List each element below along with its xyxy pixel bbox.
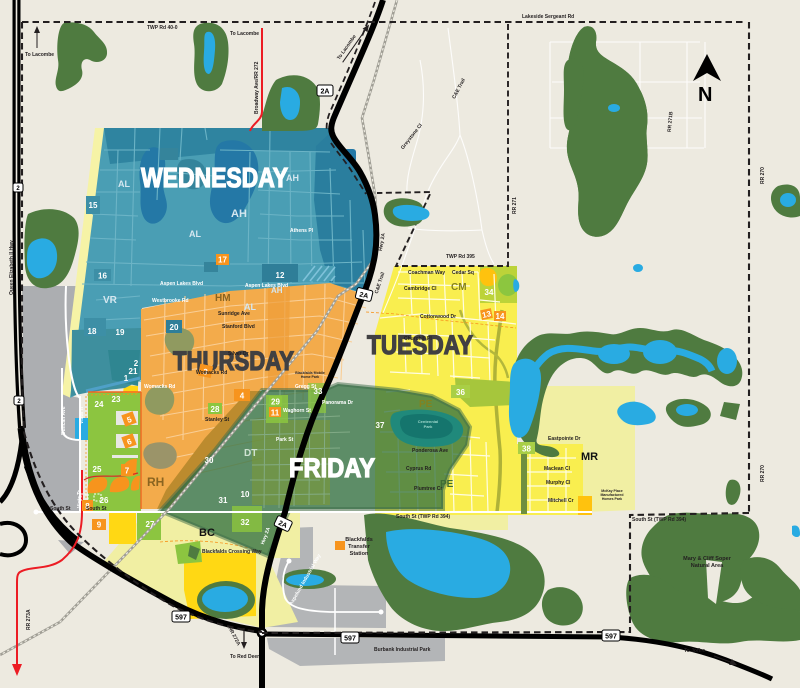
svg-text:18: 18 [88, 327, 97, 336]
svg-text:24: 24 [95, 400, 104, 409]
svg-text:Burbank Industrial Park: Burbank Industrial Park [374, 647, 431, 653]
svg-text:Mary & Cliff Soper: Mary & Cliff Soper [683, 556, 732, 562]
svg-text:Duncan Ave: Duncan Ave [61, 406, 67, 435]
svg-text:Athens Pl: Athens Pl [290, 228, 314, 234]
svg-text:South St (TWP Rd 394): South St (TWP Rd 394) [632, 517, 686, 523]
svg-text:Blackfalds: Blackfalds [345, 537, 373, 543]
svg-text:DT: DT [244, 448, 257, 459]
svg-text:BC: BC [199, 527, 215, 539]
svg-text:Blackfalds Crossing Way: Blackfalds Crossing Way [202, 549, 262, 555]
svg-text:Churchill Pl: Churchill Pl [404, 336, 432, 342]
svg-text:19: 19 [116, 328, 125, 337]
svg-text:Plumtree Cr: Plumtree Cr [414, 486, 442, 492]
svg-text:1: 1 [124, 374, 129, 383]
svg-text:RH: RH [147, 475, 164, 489]
svg-text:South St: South St [50, 506, 71, 512]
svg-text:Ponderosa Ave: Ponderosa Ave [412, 448, 448, 454]
svg-text:10: 10 [241, 490, 250, 499]
svg-text:MR: MR [581, 451, 598, 463]
svg-text:TUESDAY: TUESDAY [367, 330, 473, 360]
svg-text:597: 597 [175, 615, 187, 622]
svg-text:Coachman Way: Coachman Way [408, 270, 445, 276]
svg-text:Transfer: Transfer [348, 544, 371, 550]
svg-text:AL: AL [118, 179, 130, 189]
svg-text:Park St: Park St [276, 437, 294, 443]
svg-text:Natural Area: Natural Area [691, 563, 724, 569]
svg-text:38: 38 [522, 445, 531, 454]
svg-text:Stanford Blvd: Stanford Blvd [222, 324, 255, 330]
svg-text:To Red Deer: To Red Deer [230, 654, 259, 660]
svg-text:South St: South St [86, 506, 107, 512]
svg-text:To Lacombe: To Lacombe [230, 31, 259, 37]
svg-text:PE: PE [419, 399, 433, 410]
svg-text:AH: AH [231, 208, 247, 220]
svg-text:29: 29 [271, 398, 280, 407]
svg-text:15: 15 [89, 201, 98, 210]
svg-text:HM: HM [215, 293, 231, 304]
svg-text:Womacks Rd: Womacks Rd [144, 384, 175, 390]
svg-text:Home Park: Home Park [301, 375, 319, 379]
svg-text:Gregg St: Gregg St [295, 384, 316, 390]
svg-text:Vista Tr: Vista Tr [77, 490, 83, 508]
svg-text:Eastpointe Dr: Eastpointe Dr [548, 436, 581, 442]
svg-text:TWP Rd 395: TWP Rd 395 [446, 254, 475, 260]
svg-text:CM: CM [451, 282, 467, 293]
svg-text:To Lacombe: To Lacombe [25, 52, 54, 58]
svg-text:N: N [698, 84, 712, 106]
svg-text:30: 30 [205, 456, 214, 465]
svg-text:11: 11 [271, 409, 280, 418]
svg-text:Cambridge Cl: Cambridge Cl [404, 286, 437, 292]
svg-text:Station: Station [350, 551, 369, 557]
svg-text:Cedar Sq: Cedar Sq [452, 270, 474, 276]
svg-text:20: 20 [170, 323, 179, 332]
svg-text:25: 25 [93, 465, 102, 474]
svg-text:21: 21 [129, 367, 138, 376]
svg-text:AL: AL [189, 229, 201, 239]
svg-text:17: 17 [218, 256, 227, 265]
svg-text:AH: AH [286, 173, 299, 183]
svg-text:31: 31 [219, 496, 228, 505]
svg-text:28: 28 [211, 405, 220, 414]
svg-text:South St (TWP Rd 394): South St (TWP Rd 394) [396, 514, 450, 520]
svg-text:Aspen Lakes Blvd: Aspen Lakes Blvd [245, 283, 288, 289]
svg-text:14: 14 [496, 312, 505, 321]
svg-text:RR 270: RR 270 [760, 167, 766, 184]
svg-text:Womacks Rd: Womacks Rd [196, 370, 227, 376]
svg-text:Homes Park: Homes Park [602, 497, 622, 501]
svg-text:Cyprus Rd: Cyprus Rd [406, 466, 431, 472]
svg-text:Vista Tr: Vista Tr [79, 406, 85, 424]
svg-text:Waghorn St: Waghorn St [283, 408, 311, 414]
svg-text:27: 27 [146, 520, 155, 529]
svg-text:16: 16 [98, 272, 107, 281]
svg-text:Mitchell Cr: Mitchell Cr [548, 498, 574, 504]
svg-text:RR 270: RR 270 [760, 465, 766, 482]
svg-text:Stanley St: Stanley St [205, 417, 230, 423]
svg-text:Silver Dr: Silver Dr [228, 351, 249, 357]
svg-text:Park: Park [424, 424, 433, 429]
svg-text:4: 4 [240, 392, 245, 401]
svg-text:Sunridge Ave: Sunridge Ave [218, 311, 250, 317]
svg-text:Queen Elizabeth II Hwy: Queen Elizabeth II Hwy [9, 240, 15, 295]
svg-text:FRIDAY: FRIDAY [289, 453, 375, 483]
svg-text:597: 597 [344, 636, 356, 643]
svg-text:597: 597 [605, 634, 617, 641]
svg-text:Murphy Cl: Murphy Cl [546, 480, 571, 486]
svg-text:VR: VR [103, 295, 118, 306]
svg-text:RR 273A: RR 273A [26, 609, 32, 630]
svg-text:Cottonwood Dr: Cottonwood Dr [420, 314, 456, 320]
svg-text:23: 23 [112, 395, 121, 404]
svg-text:TWP Rd 40-0: TWP Rd 40-0 [147, 25, 178, 31]
svg-text:Westbrooke Rd: Westbrooke Rd [152, 298, 189, 304]
svg-text:Aspen Lakes Blvd: Aspen Lakes Blvd [160, 281, 203, 287]
svg-text:34: 34 [485, 288, 494, 297]
svg-text:WEDNESDAY: WEDNESDAY [141, 162, 288, 193]
svg-text:Broadway Ave/RR 272: Broadway Ave/RR 272 [254, 61, 260, 114]
svg-text:Panorama Dr: Panorama Dr [322, 400, 353, 406]
svg-text:9: 9 [97, 521, 102, 530]
svg-text:7: 7 [125, 467, 130, 476]
svg-text:32: 32 [241, 518, 250, 527]
svg-text:2A: 2A [321, 89, 330, 96]
svg-text:36: 36 [456, 388, 465, 397]
svg-text:To Joffre: To Joffre [684, 648, 705, 654]
svg-text:Lakeside Sergeant Rd: Lakeside Sergeant Rd [522, 14, 574, 20]
svg-text:Maclean Cl: Maclean Cl [544, 466, 571, 472]
svg-text:12: 12 [276, 271, 285, 280]
svg-text:RR 271: RR 271 [512, 197, 518, 214]
svg-text:37: 37 [376, 421, 385, 430]
